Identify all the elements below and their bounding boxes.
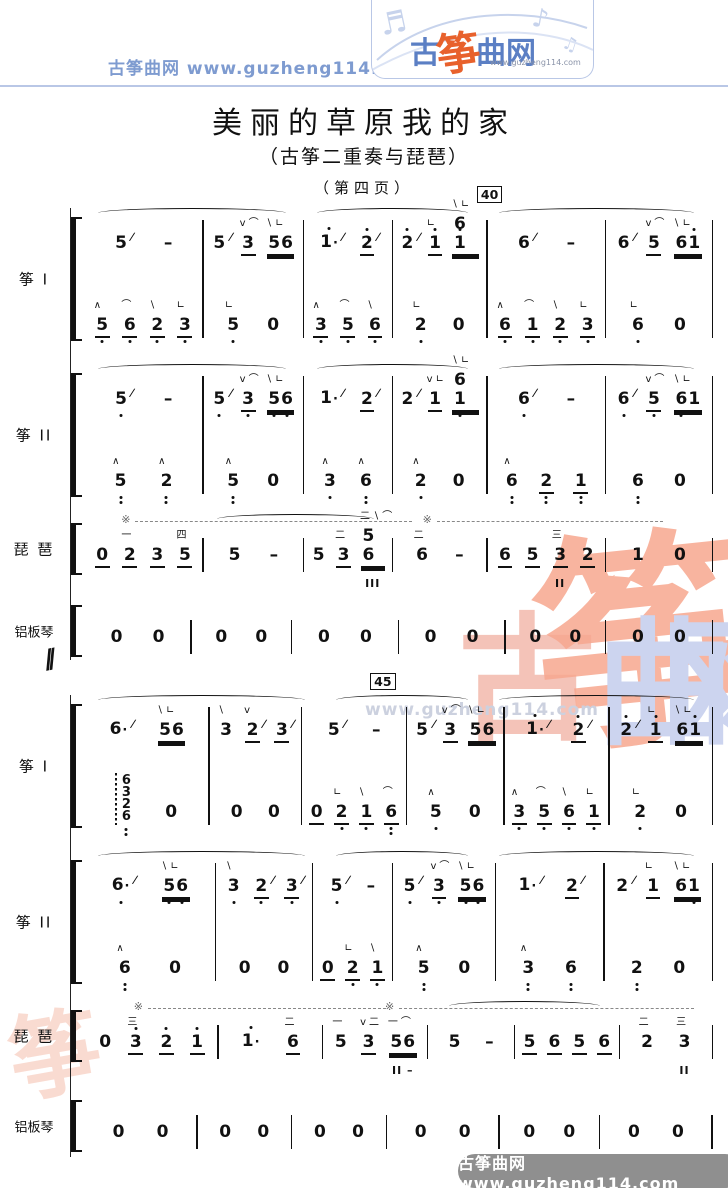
lower-voice-line: ∧60 <box>87 949 213 979</box>
part-label: 铝板琴 <box>3 1117 65 1136</box>
note: 0 <box>111 1123 126 1143</box>
note: 二2 <box>640 1033 655 1053</box>
articulation-marks: ∟ <box>176 301 187 311</box>
position-mark: III <box>365 574 380 593</box>
note: ⌒1 <box>525 316 540 336</box>
logo-url: www.guzheng114.com <box>490 58 581 67</box>
brand-name: 古筝曲网 <box>108 59 180 79</box>
note: 6 <box>631 472 646 492</box>
note: 0 <box>451 472 466 492</box>
note: ∟1 <box>428 234 443 254</box>
articulation-marks: v⌒ <box>240 375 262 385</box>
logo-zheng: 筝 <box>432 15 484 79</box>
note: 0 <box>267 803 282 823</box>
note: 6∕∕ <box>616 390 634 410</box>
page-number-note: （第四页） <box>0 177 728 198</box>
note: v⌒5 <box>646 234 661 254</box>
articulation-marks: ∧ <box>321 457 331 467</box>
measure: 2∕∕∟1∖∟61∟20 <box>393 220 486 338</box>
measure: 0一23四5 <box>85 526 202 572</box>
note: 0 <box>465 628 480 648</box>
measure: 二6– <box>393 526 486 572</box>
upper-voice-line: 6∕∕– <box>490 380 603 410</box>
note: v⌒3 <box>432 877 447 897</box>
lower-voice-line: ∧5∧2 <box>87 462 200 492</box>
articulation-marks: ∧ <box>427 788 437 798</box>
note: 0 <box>313 1123 328 1143</box>
lower-voice-line: ∧5⌒6∖2∟3 <box>87 306 200 336</box>
note: 0 <box>673 628 688 648</box>
lower-voice-line: 63260 <box>87 793 206 823</box>
upper-voice-line: 5∕∕v⌒3∖∟56 <box>409 711 501 741</box>
articulation-marks: ∟ <box>344 944 355 954</box>
note: ∖∟61 <box>452 215 479 254</box>
note: ∧3 <box>521 959 536 979</box>
pedal-dashed-line: ※ <box>437 521 663 522</box>
staff-bracket <box>71 608 80 654</box>
articulation-marks: v⌒ <box>442 706 464 716</box>
note: 0 <box>98 1033 113 1053</box>
note: 二∖⌒56III <box>361 527 385 566</box>
measure-number-box: 40 <box>477 186 502 203</box>
measure: 00 <box>292 608 397 654</box>
note: ∖∟56 <box>158 721 186 741</box>
measure: 5∕∕v⌒3∖∟56∧50 <box>393 863 494 981</box>
lower-voice-line: ∧50 <box>395 949 492 979</box>
score-system-2: 筝 I6·∕∕∖∟5663260∖3v2∕∕3∕∕005∕∕–0∟2∖1⌒65∕… <box>70 695 713 1157</box>
measures-row: 5∕∕–∧5∧25∕∕v⌒3∖∟56∧501·∕∕2∕∕∧3∧62∕∕v∟1∖∟… <box>85 376 713 494</box>
measure: 00 <box>198 1103 291 1149</box>
system-break-mark: ∕∕ <box>41 645 54 676</box>
note: – <box>269 546 280 566</box>
note: 6∕∕ <box>516 234 534 254</box>
note: ∧5 <box>113 472 128 492</box>
note: – <box>484 1033 495 1053</box>
note: ∖3 <box>226 877 241 897</box>
note: 0 <box>256 1123 271 1143</box>
articulation-marks: ∖∟ <box>673 862 694 872</box>
note: 0 <box>673 316 688 336</box>
note: – <box>454 546 465 566</box>
note: 2∕∕ <box>619 721 637 741</box>
lower-voice-line: ∧6⌒1∖2∟3 <box>490 306 603 336</box>
note: ∖6 <box>368 316 383 336</box>
measure: 00 <box>600 1103 711 1149</box>
measure: 00 <box>387 1103 498 1149</box>
upper-voice-line: 2∕∕∟1∖∟61 <box>607 867 710 897</box>
part-ban: 铝板琴000000000000 <box>71 1103 713 1149</box>
part-zheng2: 筝 II6·∕∕∖∟56∧60∖32∕∕3∕∕005∕∕–0∟2∖15∕∕v⌒3… <box>71 863 713 981</box>
page-title: 美丽的草原我的家 <box>0 98 728 142</box>
site-header: 古筝曲网 www.guzheng114.com ♬♪♫ 古筝曲网 www.guz… <box>0 0 728 87</box>
articulation-marks: ∟ <box>412 301 423 311</box>
part-pipa: 琵 琶0三3211·二6一5v二3一⌒56II –5–5656二2三3II※※ <box>71 1013 713 1059</box>
part-label: 琵 琶 <box>3 1026 65 1047</box>
part-label: 琵 琶 <box>3 539 65 560</box>
measure: 1·∕∕2∕∕∧3⌒5∖6∟1 <box>505 707 608 825</box>
note: 5 <box>525 546 540 566</box>
barline <box>712 863 714 981</box>
staff-bracket <box>71 1103 80 1149</box>
note: 6 <box>563 959 578 979</box>
note: 0 <box>674 803 689 823</box>
upper-voice-line: 5∕∕v⌒3∖∟56 <box>206 224 301 254</box>
site-logo[interactable]: ♬♪♫ 古筝曲网 www.guzheng114.com <box>371 0 594 79</box>
page-subtitle: （古筝二重奏与琵琶） <box>0 142 728 169</box>
logo-wordmark: 古筝曲网 <box>410 18 536 79</box>
lower-voice-line: ∧3⌒5∖6∟1 <box>507 793 606 823</box>
note: 6∕∕ <box>616 234 634 254</box>
articulation-marks: v⌒ <box>645 219 667 229</box>
measure: 1·∕∕2∕∕∧3∧6 <box>304 376 391 494</box>
articulation-marks: 一 <box>332 1018 345 1028</box>
lower-voice-line: ∧36 <box>498 949 601 979</box>
note: 一2 <box>122 546 137 566</box>
footer-site-bar[interactable]: 古筝曲网 www.guzheng114.com <box>458 1154 728 1188</box>
measure: 6∕∕v⌒5∖∟61∟60 <box>606 220 711 338</box>
barline <box>712 220 714 338</box>
note: – <box>566 390 577 410</box>
note: ∟5 <box>226 316 241 336</box>
measure: 2∕∕v∟1∖∟61∧20 <box>393 376 486 494</box>
measure: 5∕∕v⌒3∖∟56∟50 <box>204 220 303 338</box>
lower-voice-line: 60 <box>608 462 709 492</box>
articulation-marks: ∖∟ <box>157 706 178 716</box>
note: 0 <box>627 1123 642 1143</box>
note: 1· <box>240 1032 261 1053</box>
lower-voice-line: 00 <box>218 949 310 979</box>
note: ∧3 <box>313 316 328 336</box>
articulation-marks: ∧ <box>112 457 122 467</box>
note: – <box>566 234 577 254</box>
measures-row: 0一23四55–5二3二∖⌒56III二6–65三3II210※※ <box>85 526 713 572</box>
part-label: 筝 II <box>3 912 65 933</box>
note: 5∕∕ <box>326 721 344 741</box>
note: 0 <box>164 803 179 823</box>
note: 6∕∕ <box>516 390 534 410</box>
note: 2∕∕ <box>615 877 633 897</box>
note: ∖3 <box>219 721 234 741</box>
articulation-marks: ∧ <box>158 457 168 467</box>
measures-row: 000000000000 <box>85 608 713 654</box>
note: ∖1 <box>359 803 374 823</box>
note: ∧6 <box>117 959 132 979</box>
upper-voice-line: 5∕∕– <box>304 711 403 741</box>
articulation-marks: ∖∟ <box>673 219 694 229</box>
note: 2∕∕ <box>571 721 589 741</box>
staff-bracket <box>71 707 80 825</box>
measure: 00 <box>292 1103 385 1149</box>
articulation-marks: ∧ <box>412 457 422 467</box>
note: ∖∟56 <box>458 877 486 897</box>
measure: 00 <box>500 1103 599 1149</box>
articulation-marks: ∖∟ <box>266 375 287 385</box>
position-mark: II <box>555 574 565 593</box>
note: 0 <box>218 1123 233 1143</box>
slur-arc <box>449 1001 600 1011</box>
note: v⌒3 <box>443 721 458 741</box>
note: 5 <box>311 546 326 566</box>
articulation-marks: v <box>244 706 253 716</box>
measure: 5∕∕v⌒3∖∟56∧50 <box>204 376 303 494</box>
lower-voice-line: ∧50 <box>206 462 301 492</box>
note: 5 <box>522 1033 537 1053</box>
slur-arc <box>499 851 694 861</box>
articulation-marks: 二 <box>285 1018 298 1028</box>
articulation-marks: v⌒ <box>645 375 667 385</box>
note: ∟2 <box>413 316 428 336</box>
note: 5 <box>447 1033 462 1053</box>
note: ⌒6 <box>122 316 137 336</box>
note: 0 <box>359 628 374 648</box>
note: ∟2 <box>633 803 648 823</box>
note: 0 <box>95 546 110 566</box>
note: 2∕∕ <box>565 877 583 897</box>
note: 0 <box>451 316 466 336</box>
measure: 一5v二3一⌒56II – <box>323 1013 426 1059</box>
note: 0 <box>467 803 482 823</box>
measure: 00 <box>192 608 291 654</box>
note: ∖∟61 <box>674 234 702 254</box>
articulation-marks: ⌒ <box>536 788 549 798</box>
measure: 6∕∕–∧6⌒1∖2∟3 <box>488 220 605 338</box>
note: v二3 <box>361 1033 376 1053</box>
barline <box>712 620 714 654</box>
measure: 5656 <box>515 1013 618 1059</box>
articulation-marks: ∖∟ <box>161 862 182 872</box>
part-label: 铝板琴 <box>3 622 65 641</box>
note: ∧3 <box>512 803 527 823</box>
note: 0 <box>457 1123 472 1143</box>
note: ∟3 <box>177 316 192 336</box>
lower-voice-line: ∧3⌒5∖6 <box>306 306 389 336</box>
note: ∟1 <box>586 803 601 823</box>
part-zheng1: 筝 I5∕∕–∧5⌒6∖2∟35∕∕v⌒3∖∟56∟501·∕∕2∕∕∧3⌒5∖… <box>71 220 713 338</box>
note: ∧3 <box>322 472 337 492</box>
articulation-marks: ∧ <box>358 457 368 467</box>
articulation-marks: ∟ <box>647 706 658 716</box>
articulation-marks: ∖∟ <box>451 356 472 366</box>
articulation-marks: ∖∟ <box>674 706 695 716</box>
articulation-marks: ∖ <box>149 301 158 311</box>
slur-arc <box>499 364 694 374</box>
note: ∟6 <box>631 316 646 336</box>
note: 6·∕∕ <box>110 876 134 897</box>
note: ∖∟56 <box>162 877 190 897</box>
note: 5 <box>227 546 242 566</box>
barline <box>711 1115 713 1149</box>
measures-row: 000000000000 <box>85 1103 713 1149</box>
part-label: 筝 I <box>3 756 65 777</box>
note: 1 <box>631 546 646 566</box>
note: ∧5 <box>428 803 443 823</box>
note: ∖∟61 <box>675 721 703 741</box>
upper-voice-line: 5∕∕– <box>87 380 200 410</box>
note: ∖∟61 <box>674 877 702 897</box>
note: ∟3 <box>580 316 595 336</box>
slur-arc <box>317 208 468 218</box>
upper-voice-line: 5∕∕v⌒3∖∟56 <box>395 867 492 897</box>
note: 6 <box>498 546 513 566</box>
articulation-marks: ∧ <box>116 944 126 954</box>
note: ∟2 <box>334 803 349 823</box>
articulation-marks: 二 <box>639 1018 652 1028</box>
pedal-dashed-line: ※ <box>148 1008 387 1009</box>
upper-voice-line: 6∕∕– <box>490 224 603 254</box>
note: 0 <box>670 1123 685 1143</box>
note: 二6 <box>415 546 430 566</box>
note: 0 <box>673 546 688 566</box>
note: 三3 <box>128 1033 143 1053</box>
measures-row: 5∕∕–∧5⌒6∖2∟35∕∕v⌒3∖∟56∟501·∕∕2∕∕∧3⌒5∖62∕… <box>85 220 713 338</box>
note: 三3II <box>677 1033 692 1053</box>
measure: 00 <box>85 608 190 654</box>
note: ∟1 <box>648 721 663 741</box>
slur-arc <box>336 695 468 705</box>
slur-arc <box>499 208 694 218</box>
note: v⌒5 <box>646 390 661 410</box>
note: ∖1 <box>370 959 385 979</box>
articulation-marks: ∟ <box>645 862 656 872</box>
note: – <box>163 390 174 410</box>
slur-arc <box>217 514 374 524</box>
footer-text: 古筝曲网 www.guzheng114.com <box>458 1150 728 1193</box>
note: 1·∕∕ <box>319 389 343 410</box>
note: – <box>371 721 382 741</box>
note: 2 <box>629 959 644 979</box>
note: 3∕∕ <box>274 721 292 741</box>
part-label: 筝 I <box>3 269 65 290</box>
note: 2∕∕ <box>400 390 418 410</box>
note: ∖∟61 <box>452 371 479 410</box>
articulation-marks: 三 <box>676 1018 689 1028</box>
note: 3∕∕ <box>284 877 302 897</box>
upper-voice-line: 6·∕∕∖∟56 <box>87 711 206 741</box>
articulation-marks: ∟ <box>427 219 438 229</box>
articulation-marks: ∖∟ <box>467 706 488 716</box>
articulation-marks: ∖ <box>552 301 561 311</box>
measure: 2∕∕∟1∖∟6120 <box>605 863 712 981</box>
slur-arc <box>98 364 286 374</box>
measure: 5∕∕–∧5∧2 <box>85 376 202 494</box>
note: ∟2 <box>345 959 360 979</box>
articulation-marks: ∧ <box>94 301 104 311</box>
barline <box>712 538 714 572</box>
note: 3 <box>150 546 165 566</box>
measure: ∖32∕∕3∕∕00 <box>216 863 312 981</box>
note: ∧5 <box>95 316 110 336</box>
note: 1·∕∕ <box>525 720 549 741</box>
upper-voice-line: 2∕∕v∟1∖∟61 <box>395 380 484 410</box>
note: ⌒5 <box>340 316 355 336</box>
note: 0 <box>109 628 124 648</box>
note: v2∕∕ <box>245 721 263 741</box>
measure: ∖3v2∕∕3∕∕00 <box>210 707 301 825</box>
measure-number-box: 45 <box>370 673 395 690</box>
articulation-marks: v二 <box>360 1018 382 1028</box>
articulation-marks: ∖ <box>225 862 234 872</box>
note: ⌒5 <box>537 803 552 823</box>
note: v∟1 <box>428 390 443 410</box>
note: 5 <box>572 1033 587 1053</box>
note: ∧5 <box>416 959 431 979</box>
lower-voice-line: ∟60 <box>608 306 709 336</box>
note: 1·∕∕ <box>517 876 541 897</box>
position-mark: II – <box>392 1061 414 1080</box>
note: 1 <box>190 1033 205 1053</box>
measure: 5二3二∖⌒56III <box>304 526 391 572</box>
note: 6·∕∕ <box>108 720 132 741</box>
slur-arc <box>98 208 286 218</box>
lower-voice-line: 20 <box>607 949 710 979</box>
articulation-marks: ∟ <box>630 301 641 311</box>
note: 5∕∕ <box>329 877 347 897</box>
articulation-marks: ∖∟ <box>673 375 694 385</box>
note: 2∕∕ <box>360 390 378 410</box>
upper-voice-line: 1·∕∕2∕∕ <box>507 711 606 741</box>
slur-arc <box>98 851 305 861</box>
measure: 10 <box>606 526 711 572</box>
note: 四5 <box>177 546 192 566</box>
note: 0 <box>266 316 281 336</box>
note: 2 <box>159 1033 174 1053</box>
note: 一5 <box>333 1033 348 1053</box>
articulation-marks: ∟ <box>225 301 236 311</box>
measure: 1·∕∕2∕∕∧3⌒5∖6 <box>304 220 391 338</box>
barline <box>712 707 714 825</box>
reference-mark: ※ <box>134 1000 143 1013</box>
measure: 0三321 <box>85 1013 217 1059</box>
part-ban: 铝板琴000000000000 <box>71 608 713 654</box>
note: 5∕∕ <box>212 234 230 254</box>
upper-voice-line: 5∕∕– <box>315 867 390 897</box>
articulation-marks: ∟ <box>579 301 590 311</box>
note: ∖2 <box>553 316 568 336</box>
barline <box>712 1025 714 1059</box>
note: 2 <box>580 546 595 566</box>
articulation-marks: 三 <box>552 531 565 541</box>
note: 0 <box>351 1123 366 1143</box>
note: 一⌒56II – <box>389 1033 417 1053</box>
measure: 1·二6 <box>219 1013 322 1059</box>
measure: 00 <box>85 1103 196 1149</box>
articulation-marks: ∧ <box>225 457 235 467</box>
note: 二6 <box>286 1033 301 1053</box>
position-mark: II <box>679 1061 689 1080</box>
note: ∖∟56 <box>468 721 496 741</box>
note: ∧6 <box>359 472 374 492</box>
lower-voice-line: ∧3∧6 <box>306 462 389 492</box>
note: 5∕∕ <box>114 234 132 254</box>
measure: 6∕∕v⌒5∖∟6160 <box>606 376 711 494</box>
upper-voice-line: 2∕∕∟1∖∟61 <box>395 224 484 254</box>
note: 0 <box>673 472 688 492</box>
articulation-marks: ∟ <box>333 788 344 798</box>
staff-bracket <box>71 376 80 494</box>
reference-mark: ※ <box>385 1000 394 1013</box>
articulation-marks: 四 <box>176 531 189 541</box>
staff-bracket <box>71 1013 80 1059</box>
note: 2∕∕ <box>254 877 272 897</box>
upper-voice-line: 1·∕∕2∕∕ <box>306 380 389 410</box>
sheet-music-page: 古筝曲网 www.guzheng114.com ♬♪♫ 古筝曲网 www.guz… <box>0 0 728 1200</box>
measures-row: 6·∕∕∖∟5663260∖3v2∕∕3∕∕005∕∕–0∟2∖1⌒65∕∕v⌒… <box>85 707 713 825</box>
measure: 1·∕∕2∕∕∧36 <box>496 863 603 981</box>
note: 2 <box>539 472 554 492</box>
note: 0 <box>155 1123 170 1143</box>
note: 0 <box>562 1123 577 1143</box>
note: 0 <box>672 959 687 979</box>
